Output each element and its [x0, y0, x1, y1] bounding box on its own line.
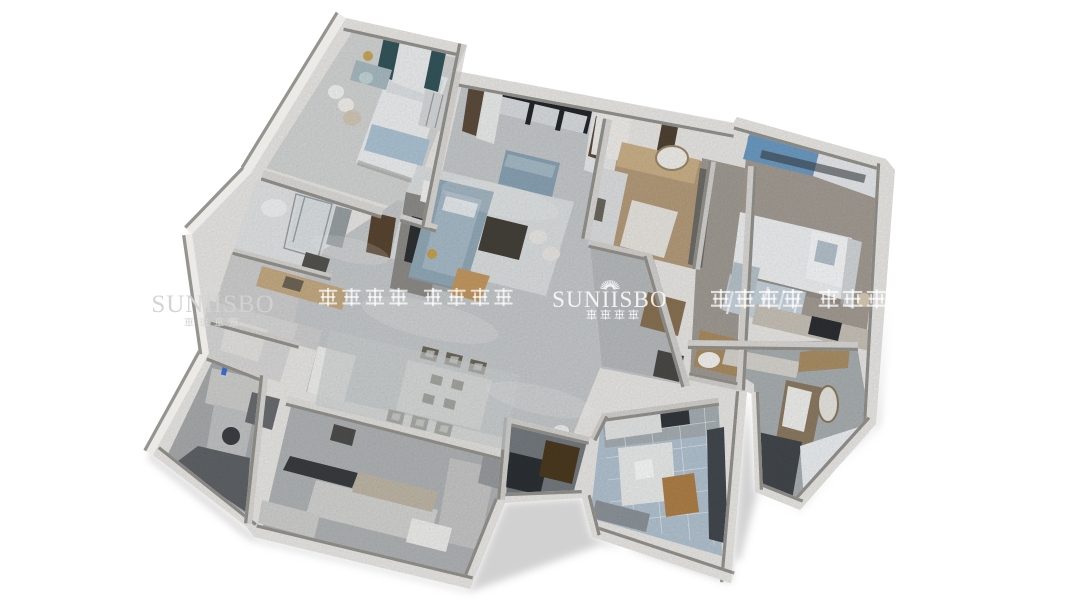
svg-text:SUNIISBO: SUNIISBO	[552, 287, 668, 312]
svg-text:SUNIISBO: SUNIISBO	[151, 291, 274, 318]
